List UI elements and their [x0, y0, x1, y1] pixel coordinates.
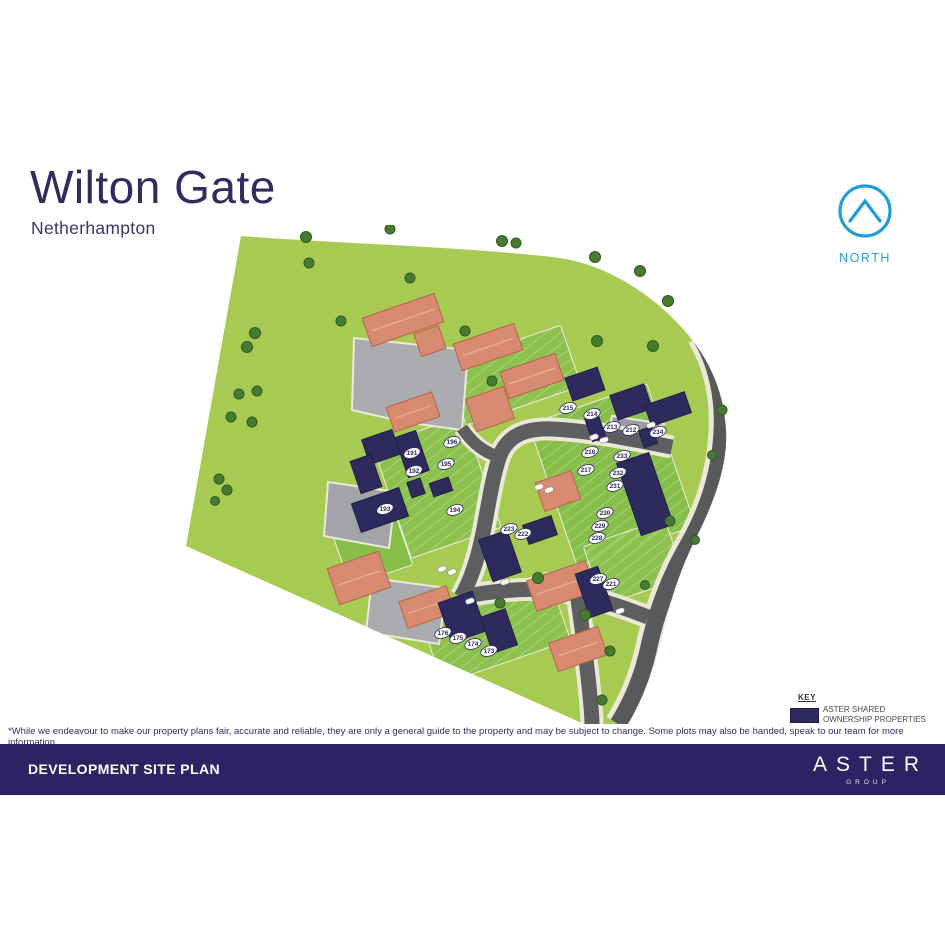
- page-title: Wilton Gate: [30, 160, 276, 214]
- svg-text:214: 214: [587, 411, 598, 418]
- svg-text:191: 191: [407, 450, 418, 457]
- svg-text:212: 212: [626, 427, 637, 434]
- svg-text:227: 227: [593, 576, 604, 583]
- north-compass: NORTH: [836, 183, 894, 265]
- svg-text:195: 195: [441, 461, 452, 468]
- svg-text:222: 222: [518, 531, 529, 538]
- svg-text:216: 216: [585, 449, 596, 456]
- svg-text:234: 234: [653, 429, 664, 436]
- svg-text:192: 192: [409, 468, 420, 475]
- svg-text:221: 221: [606, 581, 617, 588]
- key-title: KEY: [798, 693, 940, 703]
- map-key: KEY ASTER SHARED OWNERSHIP PROPERTIES: [790, 693, 940, 725]
- svg-text:194: 194: [450, 507, 461, 514]
- aster-wordmark: ASTER: [813, 753, 928, 777]
- svg-text:233: 233: [617, 453, 628, 460]
- svg-text:193: 193: [380, 506, 391, 513]
- svg-text:223: 223: [504, 526, 515, 533]
- svg-text:217: 217: [581, 467, 592, 474]
- footer-bar: DEVELOPMENT SITE PLAN ASTER GROUP: [0, 744, 945, 795]
- page-subtitle: Netherhampton: [31, 218, 156, 239]
- svg-text:230: 230: [600, 510, 611, 517]
- svg-text:215: 215: [563, 405, 574, 412]
- svg-text:229: 229: [595, 523, 606, 530]
- key-swatch: [790, 708, 819, 723]
- north-label: NORTH: [836, 251, 894, 265]
- svg-text:196: 196: [447, 439, 458, 446]
- aster-group-logo: ASTER GROUP: [813, 753, 919, 786]
- key-label: ASTER SHARED OWNERSHIP PROPERTIES: [823, 705, 926, 725]
- svg-text:175: 175: [453, 635, 464, 642]
- north-arrow-icon: [836, 183, 894, 241]
- svg-text:232: 232: [613, 470, 624, 477]
- footer-title: DEVELOPMENT SITE PLAN: [28, 761, 220, 777]
- svg-text:228: 228: [592, 535, 603, 542]
- site-plan-map: 1731741751761911921931941951962122132142…: [175, 225, 745, 730]
- svg-text:231: 231: [610, 483, 621, 490]
- svg-text:173: 173: [484, 648, 495, 655]
- svg-text:213: 213: [607, 424, 618, 431]
- svg-text:176: 176: [438, 630, 449, 637]
- aster-group-sub: GROUP: [813, 779, 923, 786]
- svg-text:174: 174: [468, 641, 479, 648]
